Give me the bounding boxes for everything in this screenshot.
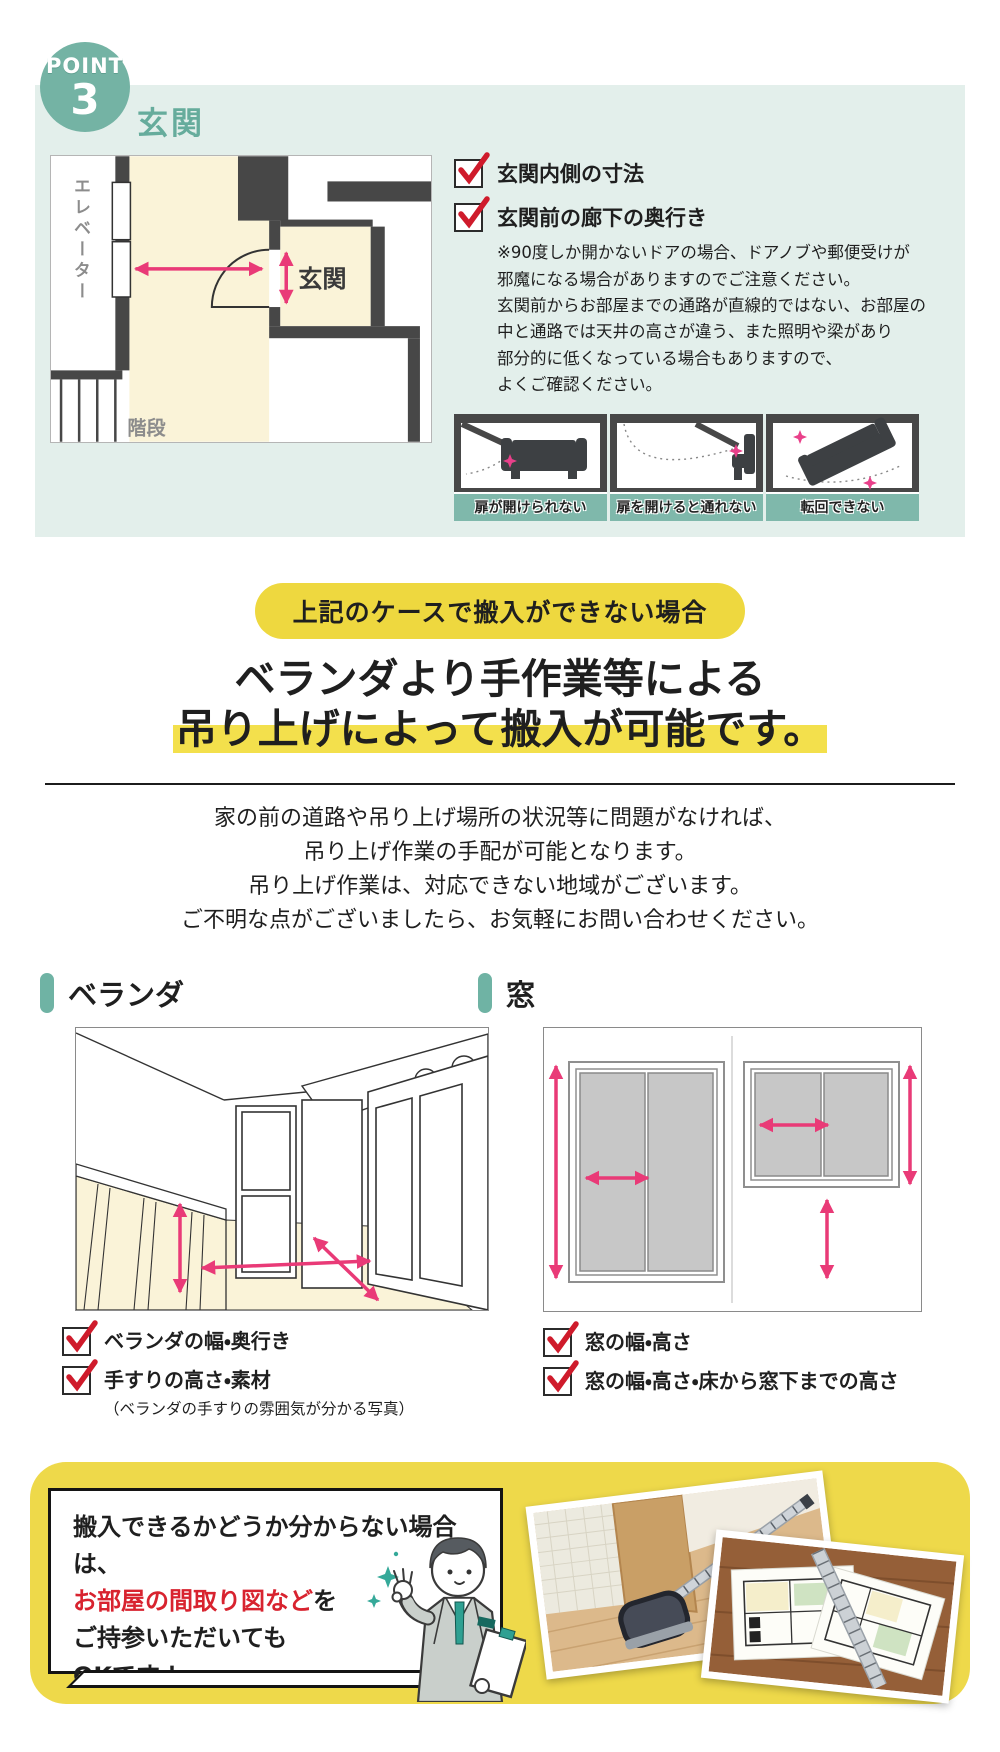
- hoisting-description: 家の前の道路や吊り上げ場所の状況等に問題がなければ、 吊り上げ作業の手配が可能と…: [0, 802, 1000, 938]
- corridor-depth-note: ※90度しか開かないドアの場合、ドアノブや郵便受けが 邪魔になる場合がありますの…: [497, 240, 926, 398]
- section-marker-bar: [40, 973, 54, 1013]
- point3-entrance-section: POINT 3 玄関: [35, 85, 965, 537]
- window-check-item-2: 窓の幅・高さ・床から窓下までの高さ: [543, 1367, 1000, 1396]
- description-line: 吊り上げ作業の手配が可能となります。: [0, 836, 1000, 870]
- check-label-balcony-size: ベランダの幅・奥行き: [104, 1327, 291, 1354]
- floorplan-tip-box: 搬入できるかどうか分からない場合は、 お部屋の間取り図などを ご持参いただいても…: [30, 1462, 970, 1704]
- note-line: 中と通路では天井の高さが違う、また照明や梁があり: [497, 319, 926, 345]
- note-line: よくご確認ください。: [497, 372, 926, 398]
- description-line: 家の前の道路や吊り上げ場所の状況等に問題がなければ、: [0, 802, 1000, 836]
- check-label-window-floor-height: 窓の幅・高さ・床から窓下までの高さ: [585, 1367, 899, 1394]
- photo-floor-plans: [701, 1529, 964, 1703]
- check-label-handrail: 手すりの高さ・素材: [104, 1366, 414, 1393]
- hoisting-heading: ベランダより手作業等による 吊り上げによって搬入が可能です。: [0, 654, 1000, 756]
- balcony-section: ベランダ: [40, 972, 478, 1432]
- description-line: 吊り上げ作業は、対応できない地域がございます。: [0, 870, 1000, 904]
- note-line: 玄関前からお部屋までの通路が直線的ではない、お部屋の: [497, 293, 926, 319]
- point-label: POINT: [40, 56, 130, 77]
- floorplan-drawing: 玄関 階段: [50, 155, 432, 443]
- check-label-corridor-depth: 玄関前の廊下の奥行き: [497, 203, 926, 231]
- diagram-caption: 扉が開けられない: [454, 494, 607, 521]
- entrance-check-item-1: 玄関内側の寸法: [454, 159, 953, 188]
- window-section: 窓: [478, 972, 1000, 1432]
- entrance-check-item-2: 玄関前の廊下の奥行き ※90度しか開かないドアの場合、ドアノブや郵便受けが 邪魔…: [454, 203, 953, 399]
- delivery-problem-diagrams: 扉が開けられない: [454, 414, 953, 521]
- balcony-perspective-diagram: [75, 1027, 487, 1311]
- balcony-check-item-1: ベランダの幅・奥行き: [62, 1327, 478, 1356]
- checkbox-checked-icon: [62, 1327, 91, 1356]
- case-badge: 上記のケースで搬入ができない場合: [255, 583, 746, 639]
- checkbox-checked-icon: [454, 203, 483, 232]
- window-section-title: 窓: [506, 972, 535, 1014]
- check-label-entrance-inner-size: 玄関内側の寸法: [497, 159, 644, 187]
- staff-illustration: [366, 1526, 526, 1702]
- point-number-badge: POINT 3: [40, 42, 130, 132]
- checkbox-checked-icon: [454, 159, 483, 188]
- diagram-cannot-pass: 扉を開けると通れない: [610, 414, 763, 521]
- checkbox-checked-icon: [543, 1367, 572, 1396]
- tie: [455, 1602, 464, 1644]
- diagram-door-cannot-open: 扉が開けられない: [454, 414, 607, 521]
- note-line: ※90度しか開かないドアの場合、ドアノブや郵便受けが: [497, 240, 926, 266]
- description-line: ご不明な点がございましたら、お気軽にお問い合わせください。: [0, 904, 1000, 938]
- checkbox-checked-icon: [62, 1366, 91, 1395]
- balcony-check-item-2: 手すりの高さ・素材 （ベランダの手すりの雰囲気が分かる写真）: [62, 1366, 478, 1422]
- section-marker-bar: [478, 973, 492, 1013]
- window-measure-diagram: [543, 1027, 920, 1312]
- elevator-label: エレベーター: [68, 177, 93, 303]
- hand: [475, 1679, 489, 1693]
- point-number: 3: [40, 79, 130, 121]
- note-line: 邪魔になる場合がありますのでご注意ください。: [497, 267, 926, 293]
- diagram-cannot-turn: 転回できない: [766, 414, 919, 521]
- diagram-caption: 扉を開けると通れない: [610, 494, 763, 521]
- tip-line2-red: お部屋の間取り図など: [73, 1587, 313, 1615]
- handrail-note: （ベランダの手すりの雰囲気が分かる写真）: [104, 1397, 414, 1422]
- heading-line1: ベランダより手作業等による: [235, 655, 766, 703]
- entrance-room-label: 玄関: [298, 265, 346, 293]
- check-label-window-size: 窓の幅・高さ: [585, 1328, 692, 1355]
- balcony-section-title: ベランダ: [68, 972, 184, 1014]
- note-line: 部分的に低くなっている場合もありますので、: [497, 346, 926, 372]
- stairs-label: 階段: [127, 417, 166, 440]
- entrance-floorplan-diagram: 玄関 階段 エレベーター: [50, 155, 432, 521]
- divider-line: [45, 783, 955, 785]
- tip-line2-suffix: を: [313, 1587, 337, 1615]
- heading-line2-highlighted: 吊り上げによって搬入が可能です。: [173, 705, 828, 753]
- section-title-entrance: 玄関: [35, 85, 965, 143]
- diagram-caption: 転回できない: [766, 494, 919, 521]
- window-check-item-1: 窓の幅・高さ: [543, 1328, 1000, 1357]
- sparkle-icon: [367, 1594, 381, 1608]
- checkbox-checked-icon: [543, 1328, 572, 1357]
